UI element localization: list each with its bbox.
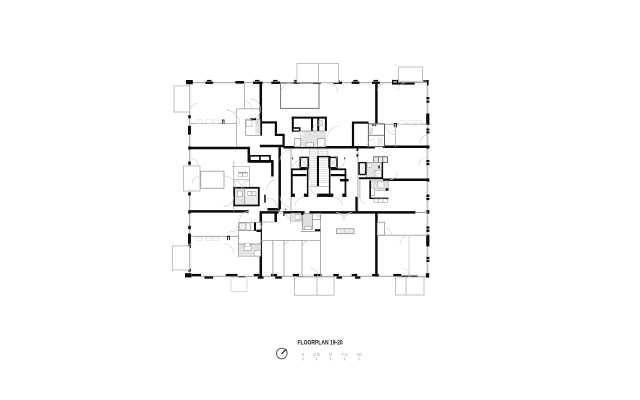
svg-text:5: 5 [329,352,332,357]
svg-text:FLOORPLAN 19-20: FLOORPLAN 19-20 [298,340,344,347]
svg-text:7.5: 7.5 [341,352,348,357]
svg-text:2.5: 2.5 [313,352,320,357]
svg-text:10: 10 [356,352,362,357]
svg-text:0: 0 [302,352,305,357]
